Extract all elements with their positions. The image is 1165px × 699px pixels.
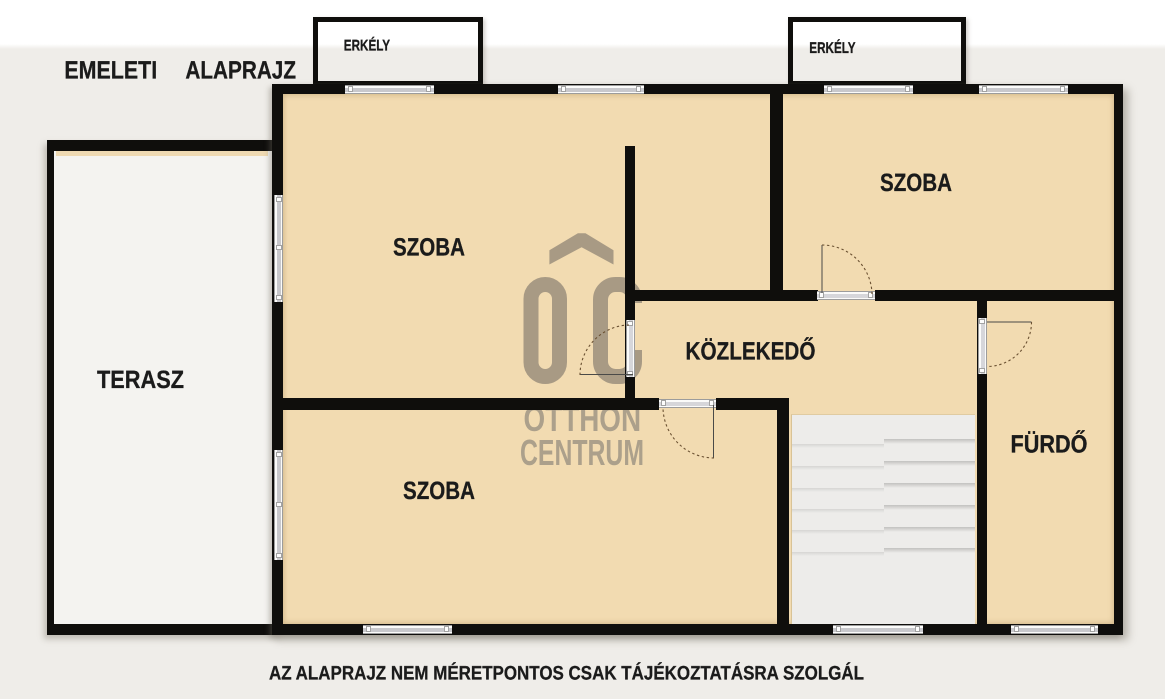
svg-text:TERASZ: TERASZ [97, 366, 184, 394]
svg-text:EMELETI: EMELETI [64, 57, 157, 85]
svg-text:AZ ALAPRAJZ NEM MÉRETPONTOS CS: AZ ALAPRAJZ NEM MÉRETPONTOS CSAK TÁJÉKOZ… [269, 661, 864, 684]
svg-text:SZOBA: SZOBA [880, 169, 952, 197]
svg-text:ERKÉLY: ERKÉLY [809, 39, 856, 57]
svg-text:ERKÉLY: ERKÉLY [344, 37, 391, 55]
svg-text:KÖZLEKEDŐ: KÖZLEKEDŐ [686, 337, 816, 366]
svg-text:SZOBA: SZOBA [393, 234, 465, 262]
svg-text:FÜRDŐ: FÜRDŐ [1011, 429, 1088, 458]
svg-text:ALAPRAJZ: ALAPRAJZ [185, 57, 296, 85]
svg-text:SZOBA: SZOBA [403, 477, 475, 505]
